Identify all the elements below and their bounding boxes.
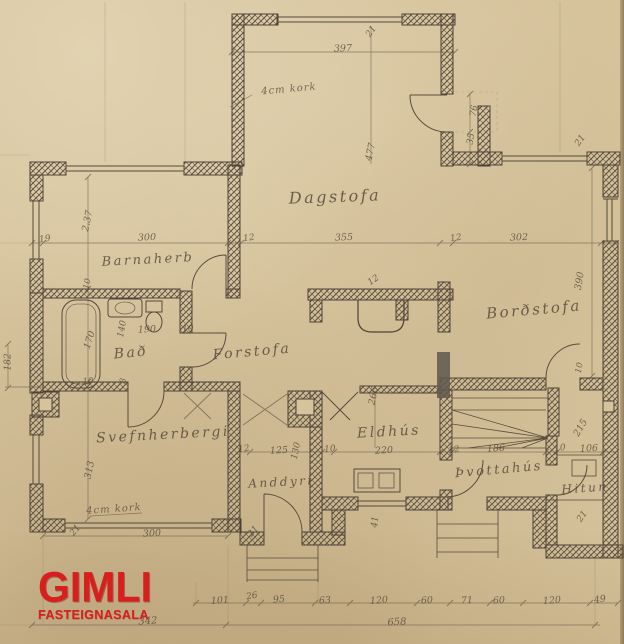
dimension-label-21: 355 (335, 233, 353, 243)
dimension-label-33: 182 (5, 353, 14, 370)
dimension-label-12: 397 (334, 44, 352, 54)
room-label-svefnherbergi: Svefnherbergi (96, 425, 230, 446)
dimension-label-32: 8 (119, 378, 128, 385)
dimension-label-18: 19 (39, 235, 52, 246)
gimli-watermark: GIMLI FASTEIGNASALA (38, 566, 152, 622)
dimension-label-35: 300 (143, 529, 162, 539)
dimension-label-16: 35 (467, 133, 478, 146)
scan-edge-shadow (620, 0, 624, 644)
dimension-label-49: 41 (371, 516, 381, 528)
dimension-label-46: 10 (554, 444, 566, 454)
dimension-label-47: 106 (580, 444, 599, 454)
dimension-label-53: 101 (211, 596, 230, 607)
dimension-label-41: 130 (291, 442, 303, 461)
gimli-brand-text: GIMLI (38, 566, 152, 609)
dimension-label-19: 300 (138, 233, 156, 243)
dimension-label-59: 71 (461, 596, 474, 606)
dimension-label-38: 266 (367, 386, 380, 406)
room-label-hitun: Hitun (561, 480, 609, 495)
dimension-label-39: 12 (238, 445, 251, 456)
dimension-label-58: 60 (421, 596, 434, 606)
plan-labels: DagstofaBarnaherbBaðForstofaBorðstofaSve… (0, 0, 624, 644)
room-label-bor-stofa: Borðstofa (486, 298, 583, 321)
annotation-label-10: 4cm kork (261, 83, 317, 98)
dimension-label-26: 170 (83, 330, 98, 350)
dimension-label-44: 12 (448, 446, 461, 457)
dimension-label-54: 26 (246, 592, 259, 603)
dimension-label-61: 120 (543, 596, 562, 607)
dimension-label-57: 120 (370, 596, 389, 607)
dimension-label-62: 49 (593, 594, 606, 605)
dimension-label-27: 140 (117, 320, 129, 338)
dimension-label-55: 95 (273, 595, 286, 605)
room-label-anddyri: Anddyri (248, 474, 314, 489)
dimension-label-34: 313 (83, 460, 96, 480)
dimension-label-24: 2.37 (81, 210, 95, 233)
room-label-ba: Bað (113, 345, 149, 362)
dimension-label-22: 12 (450, 234, 463, 245)
dimension-label-43: 220 (375, 446, 394, 456)
dimension-label-37: 21 (247, 525, 261, 540)
room-label-dagstofa: Dagstofa (289, 187, 382, 206)
dimension-label-14: 477 (364, 142, 377, 162)
dimension-label-15: 76 (470, 105, 481, 118)
dimension-label-51: 12 (367, 274, 382, 288)
dimension-label-64: 658 (387, 618, 407, 629)
dimension-label-31: 10 (82, 377, 94, 386)
dimension-label-28: 190 (138, 325, 157, 335)
dimension-label-29: 10 (182, 325, 194, 335)
dimension-label-48: 215 (572, 418, 589, 438)
dimension-label-52: 10 (575, 362, 585, 374)
room-label-forstofa: Forstofa (212, 342, 292, 363)
dimension-label-17: 21 (574, 134, 588, 149)
room-label-vottah-s: Þvottahús (455, 460, 544, 481)
annotation-label-11: 4cm kork (86, 503, 142, 517)
dimension-label-36: 21 (69, 524, 83, 539)
dimension-label-13: 21 (365, 25, 379, 40)
dimension-label-60: 60 (493, 596, 506, 606)
dimension-label-42: 10 (324, 445, 336, 455)
dimension-label-30: 10 (83, 278, 93, 290)
room-label-eldh-s: Eldhús (357, 423, 422, 440)
floor-plan-scan: DagstofaBarnaherbBaðForstofaBorðstofaSve… (0, 0, 624, 644)
dimension-label-50: 21 (576, 510, 590, 525)
dimension-label-45: 186 (487, 444, 506, 454)
room-label-barnaherb: Barnaherb (101, 251, 194, 269)
dimension-label-20: 12 (243, 234, 256, 245)
dimension-label-25: 390 (574, 271, 587, 291)
dimension-label-40: 125 (270, 446, 289, 456)
dimension-label-23: 302 (510, 233, 528, 243)
dimension-label-56: 63 (319, 596, 332, 606)
